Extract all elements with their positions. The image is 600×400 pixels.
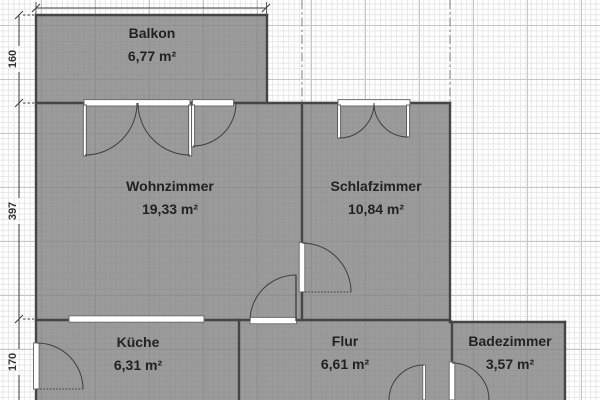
room-flur-shape[interactable] bbox=[239, 320, 452, 400]
dim-label-160: 160 bbox=[7, 50, 19, 68]
balcony-side-door[interactable] bbox=[193, 100, 234, 106]
dim-label-170: 170 bbox=[7, 353, 19, 371]
guide-lines bbox=[302, 0, 450, 101]
rooms bbox=[36, 15, 565, 400]
schlafzimmer-door[interactable] bbox=[299, 243, 305, 293]
dim-label-397: 397 bbox=[7, 202, 19, 220]
kueche-entry-door[interactable] bbox=[34, 343, 40, 389]
floorplan: Balkon 6,77 m² Wohnzimmer 19,33 m² Schla… bbox=[0, 0, 600, 400]
room-wohnzimmer-shape[interactable] bbox=[36, 103, 302, 320]
window-leaf-right bbox=[407, 105, 410, 137]
room-kueche-shape[interactable] bbox=[36, 320, 239, 400]
flur-entrance-door-leaf[interactable] bbox=[423, 365, 426, 400]
flur-wohnzimmer-door[interactable] bbox=[250, 317, 297, 323]
kueche-window[interactable] bbox=[69, 316, 204, 322]
badezimmer-door[interactable] bbox=[449, 362, 455, 400]
window-leaf-left bbox=[338, 105, 341, 138]
room-balkon-shape[interactable] bbox=[36, 15, 267, 103]
room-badezimmer-shape[interactable] bbox=[452, 322, 565, 400]
balcony-side-door-leaf bbox=[192, 105, 195, 147]
balcony-door-leaf-left bbox=[83, 105, 86, 156]
room-schlafzimmer-shape[interactable] bbox=[302, 103, 450, 320]
floorplan-canvas bbox=[0, 0, 600, 400]
